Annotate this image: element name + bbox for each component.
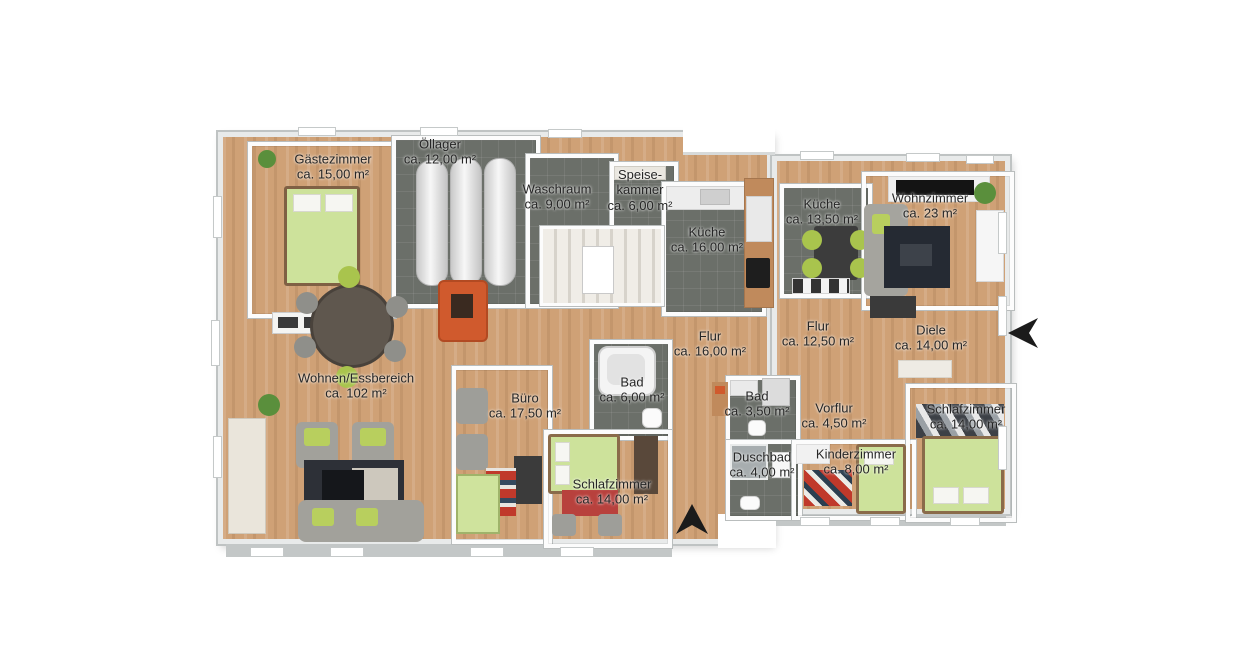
- bench: [898, 360, 952, 378]
- dining-chair: [386, 296, 408, 318]
- room-name: Gästezimmer: [294, 152, 371, 167]
- sideboard: [228, 418, 266, 534]
- dining-chair: [294, 336, 316, 358]
- window: [213, 436, 222, 478]
- dining-chair: [338, 266, 360, 288]
- room-area: ca. 17,50 m²: [489, 406, 561, 421]
- window: [211, 320, 220, 366]
- tray: [278, 317, 298, 328]
- fireplace-opening: [451, 294, 473, 318]
- window: [470, 547, 504, 557]
- chair: [598, 514, 622, 536]
- room-area: ca. 14,00 m²: [573, 492, 652, 507]
- bed-pillow: [555, 465, 570, 485]
- room-area: ca. 8,00 m²: [816, 462, 896, 477]
- room-name: Bad: [724, 389, 789, 404]
- chair: [552, 514, 576, 536]
- cushion: [360, 428, 386, 446]
- coffee-table: [900, 244, 932, 266]
- cushion: [356, 508, 378, 526]
- window: [998, 212, 1007, 254]
- window: [800, 151, 834, 160]
- room-name: Flur: [674, 329, 746, 344]
- wardrobe: [870, 296, 916, 318]
- window: [250, 547, 284, 557]
- bed-pillow: [325, 194, 353, 212]
- room-label-vorflur: Vorflur ca. 4,50 m²: [801, 401, 866, 432]
- room-area: ca. 6,00 m²: [607, 198, 673, 213]
- room-area: ca. 4,00 m²: [729, 465, 794, 480]
- room-area: ca. 6,00 m²: [599, 390, 664, 405]
- room-label-speisekammer: Speise-kammer ca. 6,00 m²: [607, 167, 673, 213]
- cushion: [304, 428, 330, 446]
- room-area: ca. 23 m²: [892, 206, 968, 221]
- plant-icon: [258, 394, 280, 416]
- bed-pillow: [555, 442, 570, 462]
- desk: [514, 456, 542, 504]
- toilet: [740, 496, 760, 510]
- shelf-console: [792, 278, 850, 294]
- window: [966, 155, 994, 164]
- window: [298, 127, 336, 136]
- window: [548, 129, 582, 138]
- room-name: Küche: [671, 225, 743, 240]
- room-area: ca. 9,00 m²: [523, 197, 592, 212]
- room-label-bad-35: Bad ca. 3,50 m²: [724, 389, 789, 420]
- window: [800, 517, 830, 526]
- room-name: Wohnzimmer: [892, 191, 968, 206]
- room-area: ca. 16,00 m²: [674, 344, 746, 359]
- room-name: Küche: [786, 197, 858, 212]
- bed-pillow: [933, 487, 959, 504]
- room-label-bad-6: Bad ca. 6,00 m²: [599, 375, 664, 406]
- room-label-schlafzimmer-rechts: Schlafzimmer ca. 14,00 m²: [927, 402, 1006, 433]
- room-name: Flur: [782, 319, 854, 334]
- room-label-flur-125: Flur ca. 12,50 m²: [782, 319, 854, 350]
- kitchen-sink: [700, 189, 730, 205]
- room-name: Duschbad: [729, 450, 794, 465]
- plant-icon: [258, 150, 276, 168]
- room-label-schlafzimmer-mitte: Schlafzimmer ca. 14,00 m²: [573, 477, 652, 508]
- room-label-flur-16: Flur ca. 16,00 m²: [674, 329, 746, 360]
- room-name: Kinderzimmer: [816, 447, 896, 462]
- dining-chair: [802, 258, 822, 278]
- room-label-wohnzimmer: Wohnzimmer ca. 23 m²: [892, 191, 968, 222]
- room-name: Bad: [599, 375, 664, 390]
- window: [420, 127, 458, 136]
- room-label-diele: Diele ca. 14,00 m²: [895, 323, 967, 354]
- room-name: Schlafzimmer: [927, 402, 1006, 417]
- room-label-gaestezimmer: Gästezimmer ca. 15,00 m²: [294, 152, 371, 183]
- room-label-oellager: Öllager ca. 12,00 m²: [404, 137, 476, 168]
- room-name: Büro: [489, 391, 561, 406]
- room-area: ca. 14,00 m²: [927, 417, 1006, 432]
- room-label-duschbad: Duschbad ca. 4,00 m²: [729, 450, 794, 481]
- room-name: Schlafzimmer: [573, 477, 652, 492]
- coffee-table: [322, 470, 364, 500]
- office-chair: [456, 434, 488, 470]
- roof-step-cover: [683, 122, 775, 155]
- toilet: [748, 420, 766, 436]
- sofa: [298, 500, 424, 542]
- room-label-buero: Büro ca. 17,50 m²: [489, 391, 561, 422]
- room-name: Vorflur: [801, 401, 866, 416]
- floor-plan: Gästezimmer ca. 15,00 m² Öllager ca. 12,…: [0, 0, 1252, 664]
- room-area: ca. 3,50 m²: [724, 404, 789, 419]
- dining-chair: [384, 340, 406, 362]
- dining-table: [310, 284, 394, 368]
- room-name: Wohnen/Essbereich: [298, 371, 414, 386]
- window: [870, 517, 900, 526]
- room-label-waschraum: Waschraum ca. 9,00 m²: [523, 182, 592, 213]
- plant-icon: [974, 182, 996, 204]
- room-name: Diele: [895, 323, 967, 338]
- window: [213, 196, 222, 238]
- room-area: ca. 4,50 m²: [801, 416, 866, 431]
- room-name: Öllager: [404, 137, 476, 152]
- window: [950, 517, 980, 526]
- room-name: Waschraum: [523, 182, 592, 197]
- room-area: ca. 102 m²: [298, 386, 414, 401]
- oil-tank: [416, 160, 448, 286]
- room-area: ca. 15,00 m²: [294, 167, 371, 182]
- room-area: ca. 14,00 m²: [895, 338, 967, 353]
- toilet: [642, 408, 662, 428]
- room-area: ca. 12,00 m²: [404, 152, 476, 167]
- bed-pillow: [293, 194, 321, 212]
- room-label-wohnen-essbereich: Wohnen/Essbereich ca. 102 m²: [298, 371, 414, 402]
- cushion: [312, 508, 334, 526]
- window: [560, 547, 594, 557]
- oil-tank: [484, 158, 516, 286]
- window: [998, 426, 1007, 470]
- room-area: ca. 12,50 m²: [782, 334, 854, 349]
- room-area: ca. 16,00 m²: [671, 240, 743, 255]
- bed-pillow: [963, 487, 989, 504]
- washing-machine: [582, 246, 614, 294]
- counter-block: [746, 196, 772, 242]
- room-label-kueche-135: Küche ca. 13,50 m²: [786, 197, 858, 228]
- entrance-arrow-east-icon: [1008, 318, 1038, 348]
- bed-schlafzimmer-rechts: [922, 436, 1004, 514]
- window: [906, 153, 940, 162]
- room-label-kinderzimmer: Kinderzimmer ca. 8,00 m²: [816, 447, 896, 478]
- dining-chair: [296, 292, 318, 314]
- fireplace: [438, 280, 488, 342]
- window: [330, 547, 364, 557]
- cooktop: [746, 258, 770, 288]
- window: [998, 296, 1007, 336]
- room-label-kueche-16: Küche ca. 16,00 m²: [671, 225, 743, 256]
- daybed: [456, 474, 500, 534]
- oil-tank: [450, 158, 482, 286]
- room-area: ca. 13,50 m²: [786, 212, 858, 227]
- office-chair: [456, 388, 488, 424]
- dining-chair: [802, 230, 822, 250]
- room-name: Speise-kammer: [607, 167, 673, 198]
